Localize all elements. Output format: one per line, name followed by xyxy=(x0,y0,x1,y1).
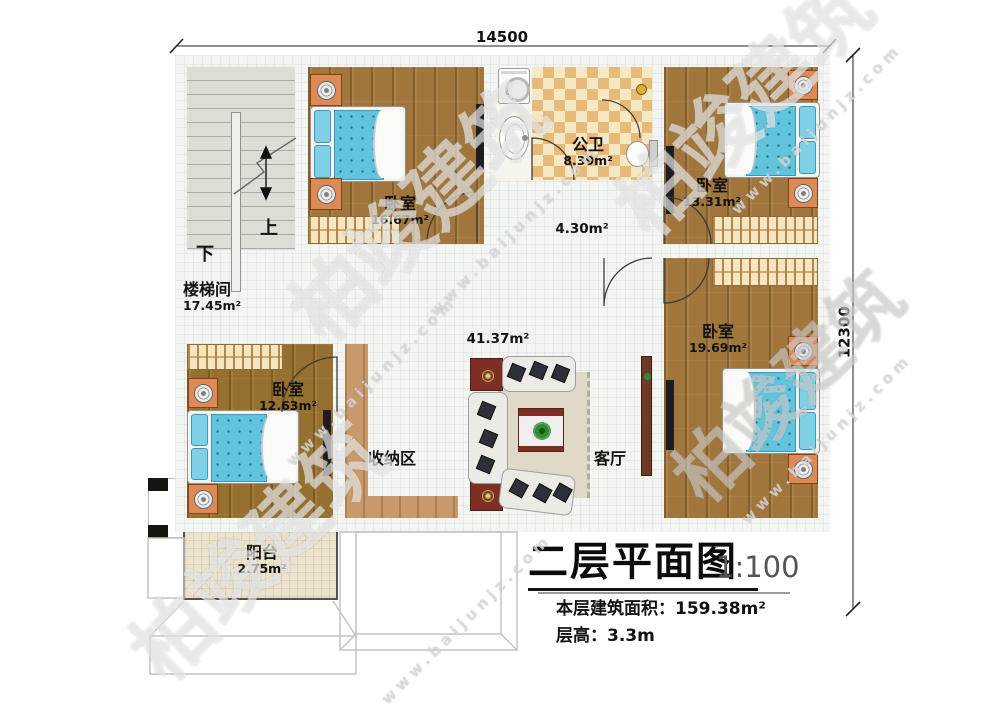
stair-break-line xyxy=(234,138,296,194)
room-label-bedroom-top-left: 卧室16.67m² xyxy=(360,195,440,227)
roof-outlines xyxy=(148,532,517,674)
door-arc xyxy=(602,100,640,138)
room-label-bathroom: 公卫8.39m² xyxy=(548,136,628,168)
stairs-up-label: 上 xyxy=(260,219,278,239)
room-label-balcony: 阳台2.75m² xyxy=(222,544,302,576)
floor-plan-canvas: 14500 12300 楼梯间17.45m² 上 下 卧室16.67m² 公卫8… xyxy=(0,0,1000,706)
door-arcs xyxy=(282,100,711,412)
dimension-label-right: 12300 xyxy=(837,312,854,358)
plan-title: 二层平面图 xyxy=(528,540,738,585)
floor-height-line: 层高：3.3m xyxy=(556,627,655,646)
room-label-bedroom-right: 卧室19.69m² xyxy=(678,323,758,355)
stairs-down-label: 下 xyxy=(196,245,214,265)
room-label-storage: 收纳区 xyxy=(352,450,432,468)
room-label-living-room: 客厅 xyxy=(580,450,640,468)
floor-height-value: 3.3m xyxy=(607,626,655,646)
dimension-label-top: 14500 xyxy=(462,29,542,46)
floor-height-label: 层高： xyxy=(556,626,607,646)
floor-area-value: 159.38m² xyxy=(675,599,766,619)
room-label-bedroom-top-right: 卧室13.31m² xyxy=(672,177,752,209)
door-arc xyxy=(664,258,709,303)
room-label-hallway: 4.30m² xyxy=(542,222,622,237)
floor-area-line: 本层建筑面积：159.38m² xyxy=(556,600,766,619)
room-label-bedroom-bottom-left: 卧室12.63m² xyxy=(248,381,328,413)
plan-scale: 1:100 xyxy=(716,551,800,583)
room-label-stairwell: 楼梯间17.45m² xyxy=(183,281,241,313)
room-label-living-area: 41.37m² xyxy=(458,332,538,347)
floor-area-label: 本层建筑面积： xyxy=(556,599,675,619)
door-arc xyxy=(604,258,652,306)
